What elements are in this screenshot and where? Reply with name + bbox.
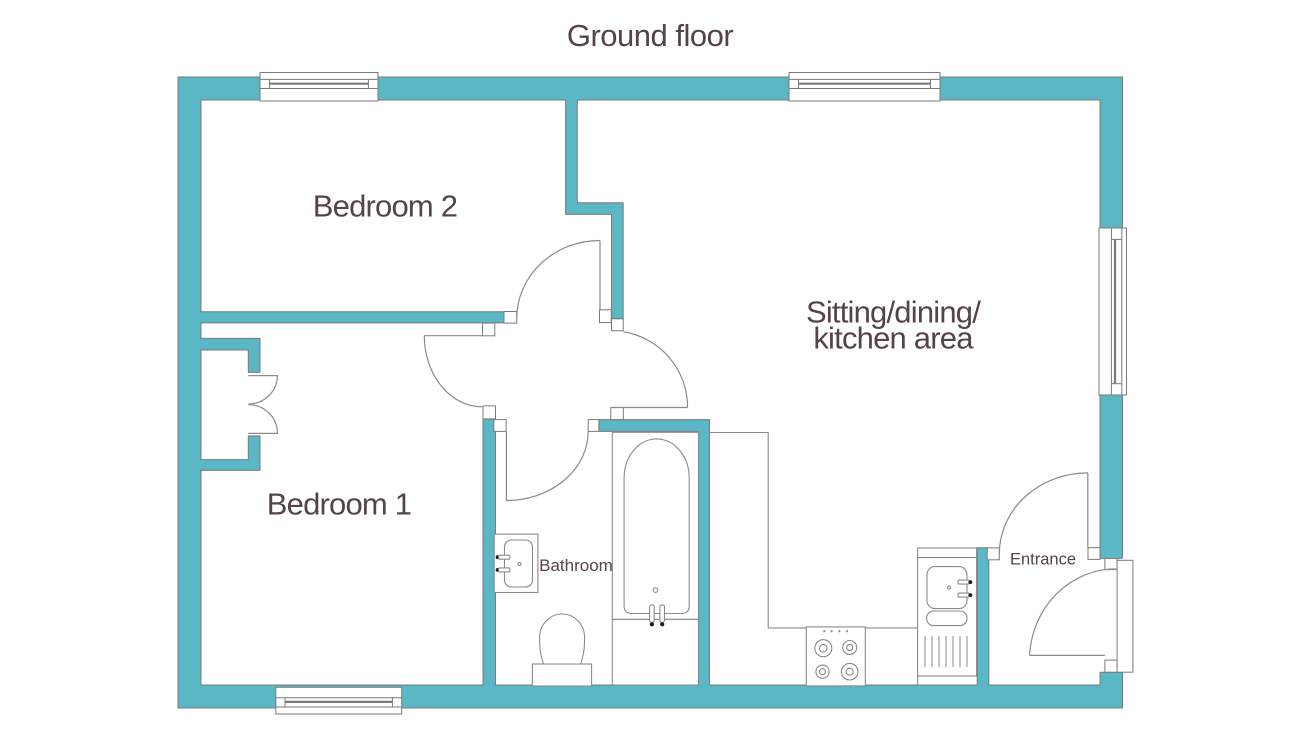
svg-text:Ground floor: Ground floor [567,18,733,53]
svg-text:Bedroom 2: Bedroom 2 [313,189,457,224]
svg-text:kitchen area: kitchen area [813,321,974,356]
svg-text:Bedroom 1: Bedroom 1 [267,487,411,522]
svg-text:Bathroom: Bathroom [539,556,613,575]
svg-text:Entrance: Entrance [1010,551,1076,569]
